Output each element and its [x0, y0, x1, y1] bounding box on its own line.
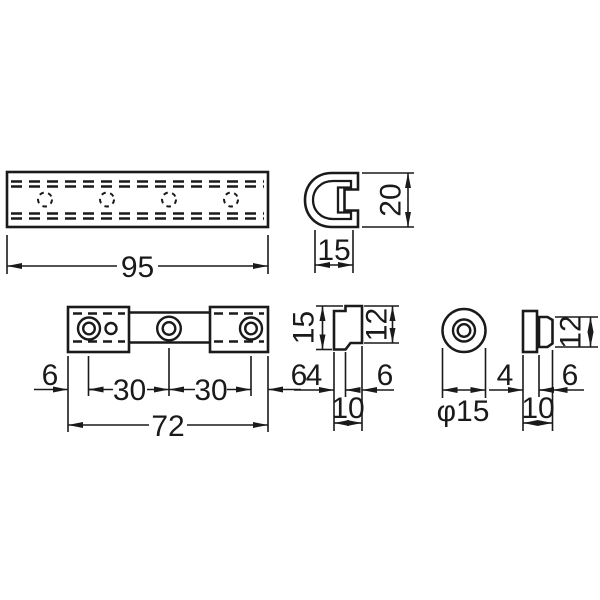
dim-label-95: 95 — [121, 251, 154, 284]
dim-label-6-left: 6 — [42, 359, 59, 392]
dim-cap-depth: 4 6 10 — [489, 350, 584, 431]
bracket-hole — [157, 317, 181, 341]
dim-label-cap-4: 4 — [497, 359, 514, 392]
dim-cap-boss-height: 12 — [555, 315, 599, 348]
cap-flange — [523, 311, 537, 352]
dim-label-72: 72 — [151, 410, 184, 443]
dim-label-bracket-6: 6 — [377, 359, 394, 392]
dim-label-15: 15 — [317, 234, 350, 267]
dim-bracket-depth: 4 6 10 — [294, 346, 394, 431]
bracket-top-view: 6 30 30 6 72 — [34, 307, 307, 443]
dim-label-20: 20 — [375, 183, 408, 216]
dim-label-bracket-4: 4 — [306, 359, 323, 392]
cap-section-view: 12 4 6 10 — [489, 311, 598, 431]
bracket-hole — [163, 322, 176, 335]
dim-bracket-length: 72 — [68, 410, 268, 443]
cap-boss — [539, 317, 553, 347]
dim-label-bracket-10: 10 — [331, 392, 364, 425]
rail-section-view: 20 15 — [305, 173, 414, 273]
dim-label-bracket-15: 15 — [288, 311, 321, 344]
dim-bracket-hole-pitch: 6 30 30 6 — [34, 359, 307, 407]
dim-label-30-left: 30 — [113, 374, 146, 407]
dim-label-bracket-12: 12 — [361, 308, 394, 341]
dim-label-cap-12: 12 — [555, 315, 588, 348]
dim-label-phi15: φ15 — [437, 395, 490, 428]
drawing-canvas: 95 20 15 — [0, 0, 600, 600]
technical-drawing: 95 20 15 — [0, 0, 600, 600]
dim-rail-height: 20 — [362, 173, 414, 227]
dim-label-30-right: 30 — [194, 374, 227, 407]
dim-cap-diameter: φ15 — [437, 348, 490, 428]
dim-rail-length: 95 — [7, 235, 268, 284]
rail-top-view: 95 — [7, 172, 268, 284]
dim-bracket-boss-height: 12 — [361, 306, 400, 343]
cap-front-view: φ15 — [437, 309, 490, 428]
dim-rail-width: 15 — [315, 230, 353, 273]
dim-label-cap-6: 6 — [562, 359, 579, 392]
dim-label-cap-10: 10 — [521, 392, 554, 425]
